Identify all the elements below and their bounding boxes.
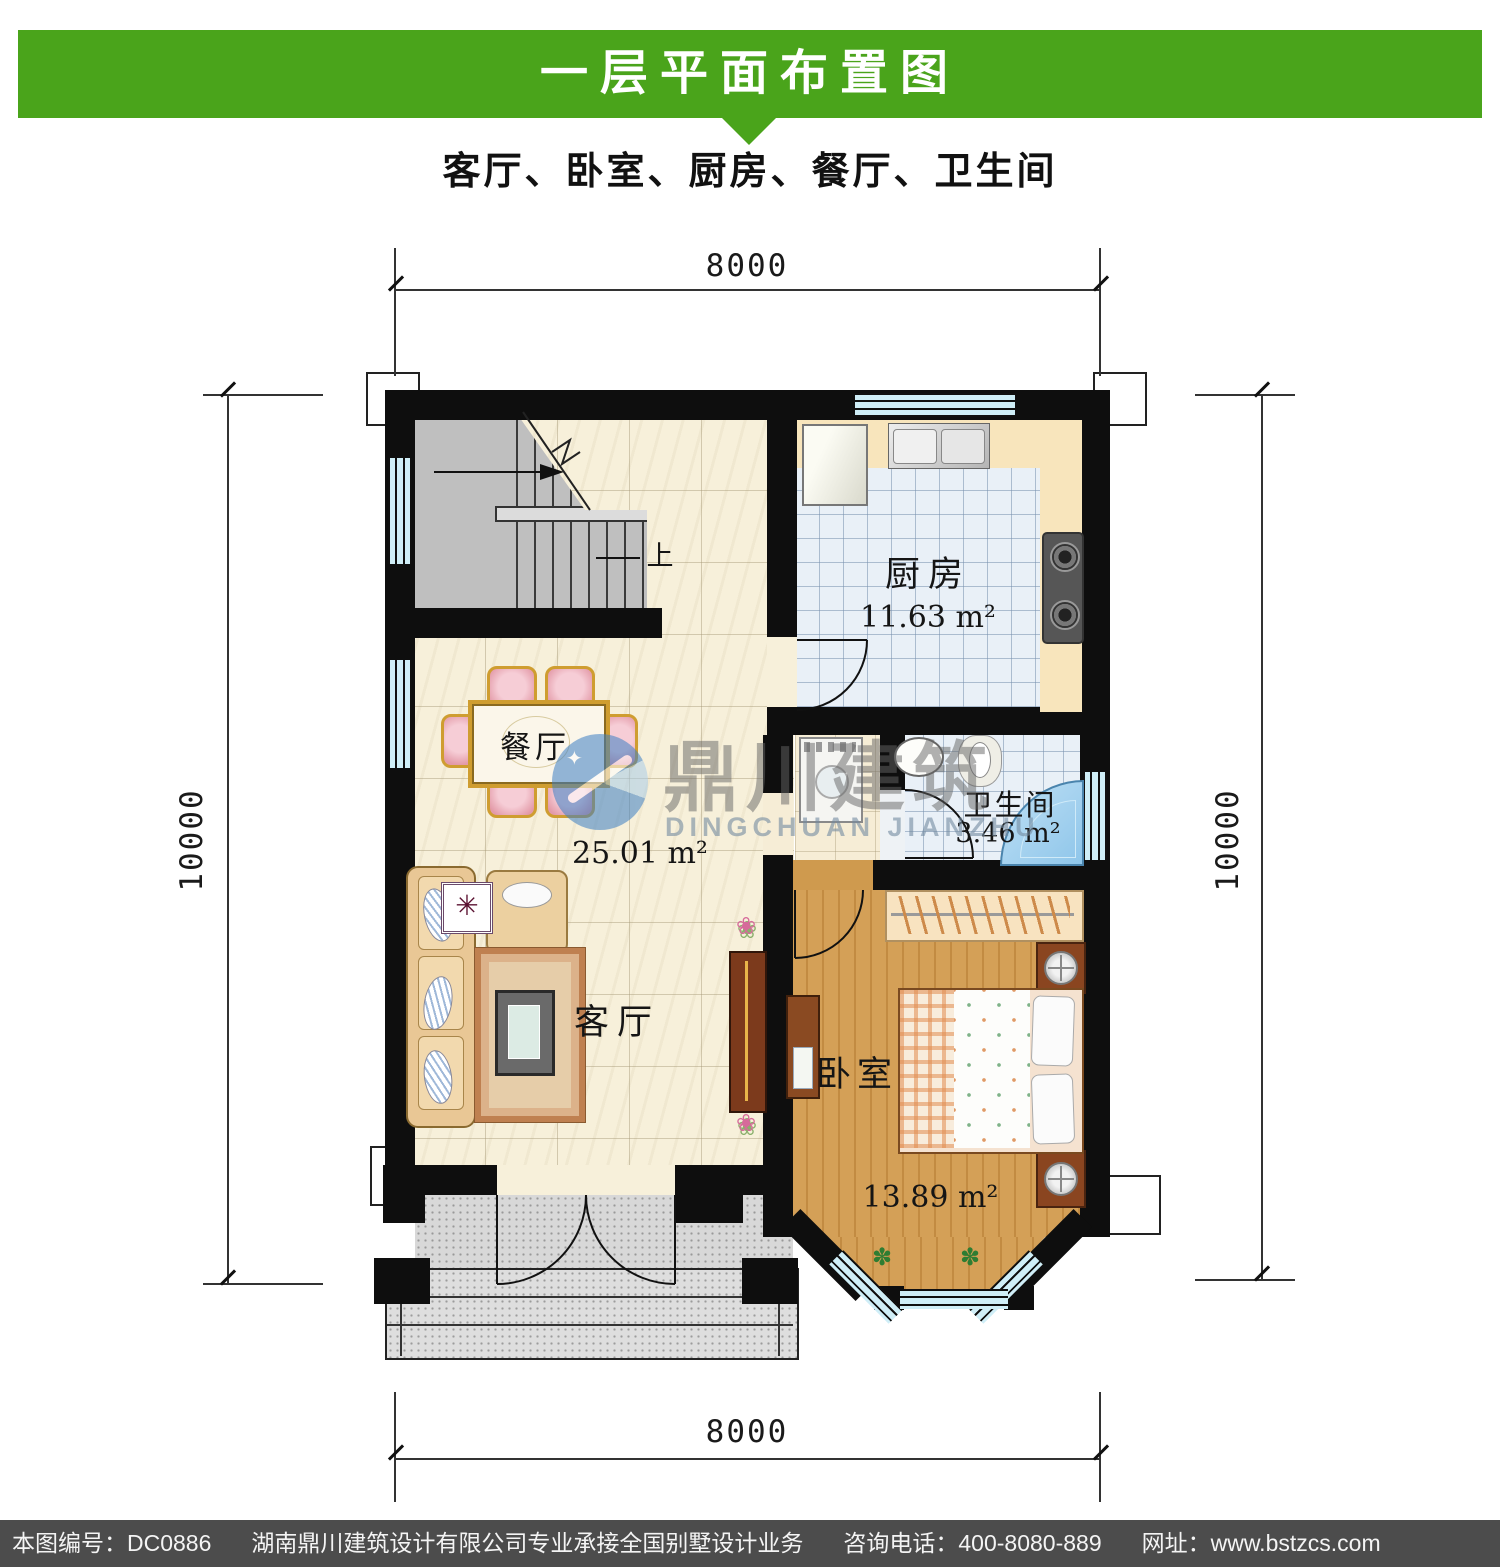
- dim-line-left: [227, 395, 229, 1285]
- flower-pot: ❀: [736, 1112, 756, 1136]
- footer-website: 网址：www.bstzcs.com: [1142, 1530, 1381, 1556]
- dim-ext-line: [1099, 1392, 1101, 1502]
- dim-ext-line: [394, 248, 396, 376]
- title-bar: 一层平面布置图: [18, 30, 1482, 118]
- wardrobe-hangers: [895, 896, 1070, 934]
- dim-ext-line: [1099, 248, 1101, 376]
- room-list-subtitle: 客厅、卧室、厨房、餐厅、卫生间: [0, 140, 1500, 195]
- bay-window-center: [900, 1289, 1008, 1309]
- wall-kitchen-left: [767, 420, 797, 637]
- bathroom-area: 3.46 m²: [943, 818, 1073, 849]
- toilet-pan: [969, 742, 991, 778]
- dim-left-value: 10000: [174, 760, 210, 920]
- tv-cabinet: [729, 951, 767, 1113]
- dim-ext-line: [1195, 394, 1295, 396]
- porch-steps: [385, 1268, 799, 1360]
- floor-plan-page: 一层平面布置图 客厅、卧室、厨房、餐厅、卫生间 8000 8000 10000 …: [0, 0, 1500, 1567]
- lamp: [1044, 1162, 1078, 1196]
- entry-door-opening: [497, 1165, 675, 1195]
- pillow: [1031, 1073, 1075, 1144]
- dining-window: [388, 660, 412, 768]
- stair-up-label: 上: [642, 534, 678, 573]
- washer-door: [815, 765, 849, 799]
- dim-tick: [1093, 1444, 1109, 1460]
- washing-machine: [799, 737, 863, 823]
- flower-pot: ❀: [736, 915, 756, 939]
- kitchen-door-opening: [767, 637, 797, 707]
- burner: [1050, 600, 1080, 630]
- porch-column: [374, 1258, 430, 1304]
- dim-ext-line: [1195, 1279, 1295, 1281]
- plant: ✽: [960, 1246, 980, 1270]
- dim-line-bottom: [395, 1458, 1101, 1460]
- dim-line-right: [1261, 395, 1263, 1281]
- dim-bottom-value: 8000: [657, 1414, 837, 1450]
- kitchen-sink: [888, 423, 990, 469]
- entry-column-right: [675, 1165, 743, 1223]
- plant: ✽: [872, 1246, 892, 1270]
- bathroom-door-opening: [880, 790, 905, 860]
- fridge: [802, 424, 868, 506]
- nightstand: [1036, 942, 1086, 994]
- footer-drawing-no: 本图编号：DC0886: [12, 1530, 211, 1556]
- wall-stair-bottom: [385, 608, 662, 638]
- kitchen-window: [855, 393, 1015, 417]
- bedroom-door-opening: [793, 860, 873, 890]
- flower-art-table: ✳: [441, 882, 493, 934]
- armchair-pillow: [502, 882, 552, 908]
- double-bed: [898, 988, 1084, 1154]
- dim-ext-line: [394, 1392, 396, 1502]
- wardrobe: [885, 890, 1084, 942]
- kitchen-area: 11.63 m²: [848, 600, 1008, 635]
- living-dining-area: 25.01 m²: [560, 836, 720, 871]
- gas-stove: [1042, 532, 1084, 644]
- squat-toilet: [958, 735, 1002, 787]
- bedroom-area: 13.89 m²: [848, 1180, 1013, 1215]
- stair-treads-lower: [500, 518, 647, 610]
- hall-passage-opening: [763, 793, 793, 855]
- entry-column-left: [383, 1165, 425, 1223]
- sink-basin: [893, 429, 937, 464]
- bath-sink: [894, 737, 944, 777]
- coffee-table-glass: [508, 1005, 540, 1059]
- porch-step-edge: [387, 1324, 793, 1326]
- pillow: [1031, 995, 1075, 1066]
- armchair: [486, 870, 568, 954]
- burner: [1050, 542, 1080, 572]
- dining-label: 餐厅: [478, 722, 592, 767]
- living-label: 客厅: [552, 994, 682, 1045]
- bed-duvet-floral: [954, 990, 1030, 1148]
- wall-hall-left-upper: [763, 735, 793, 793]
- sink-basin: [941, 429, 985, 464]
- corner-pilaster: [1107, 1175, 1161, 1235]
- footer-company: 湖南鼎川建筑设计有限公司专业承接全国别墅设计业务: [251, 1530, 803, 1556]
- dim-top-value: 8000: [657, 248, 837, 284]
- footer-phone: 咨询电话：400-8080-889: [843, 1530, 1101, 1556]
- washer-controls: [804, 742, 856, 752]
- tv-cabinet-trim: [745, 961, 748, 1101]
- dim-line-top: [395, 289, 1101, 291]
- porch-step-edge: [387, 1296, 793, 1298]
- dim-right-value: 10000: [1210, 760, 1246, 920]
- lamp: [1044, 951, 1078, 985]
- porch-column: [742, 1258, 798, 1304]
- kitchen-label: 厨房: [858, 546, 998, 597]
- bathroom-window: [1083, 772, 1107, 860]
- coffee-table: [495, 990, 555, 1076]
- dim-tick: [1093, 275, 1109, 291]
- page-title: 一层平面布置图: [18, 30, 1482, 118]
- footer-bar: 本图编号：DC0886湖南鼎川建筑设计有限公司专业承接全国别墅设计业务咨询电话：…: [0, 1520, 1500, 1567]
- stair-window: [388, 458, 412, 564]
- nightstand: [1036, 1150, 1086, 1208]
- bedroom-label: 卧室: [790, 1046, 924, 1097]
